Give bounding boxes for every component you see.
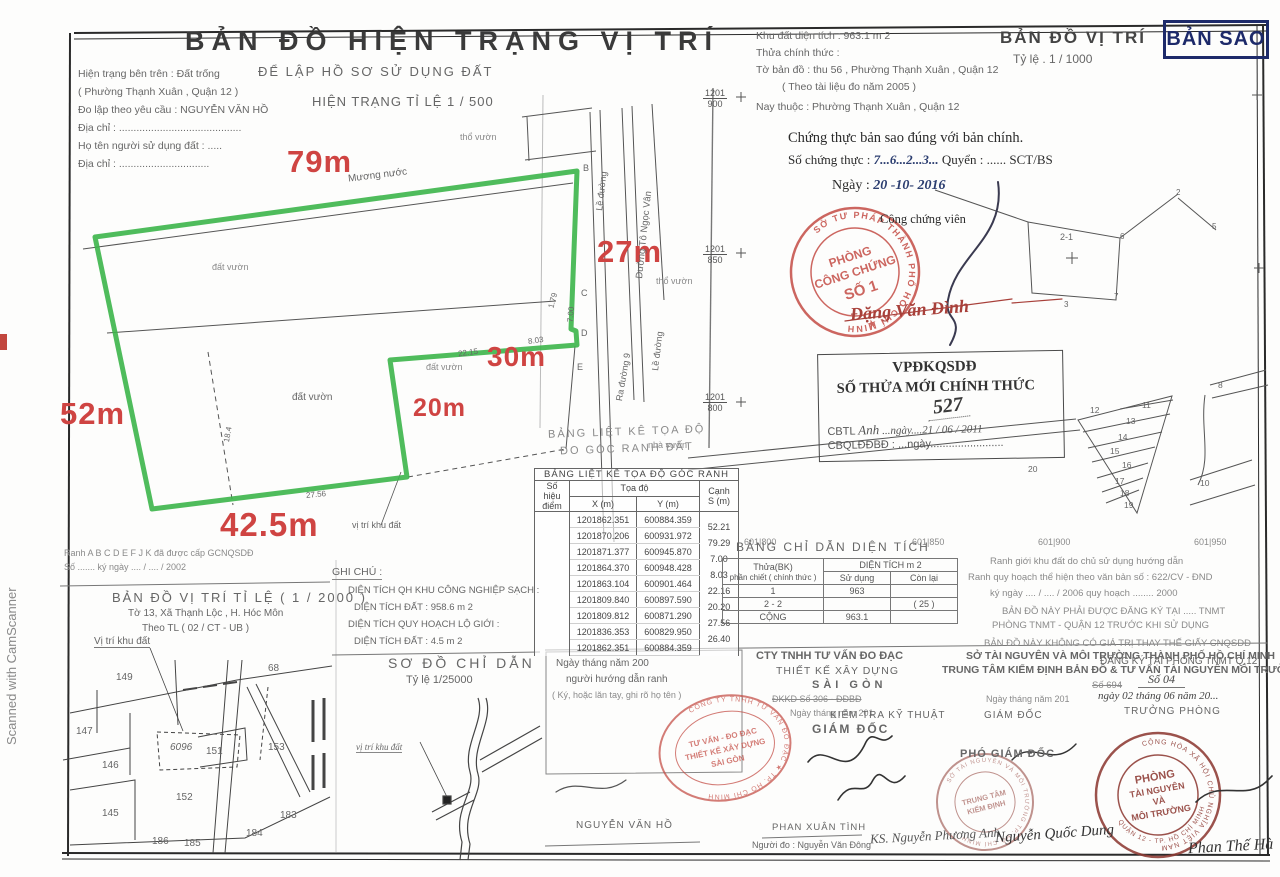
grid-label-601-950: 601|950 [1194,537,1226,547]
coordinate-table: BẢNG LIỆT KÊ TỌA ĐỘ GÓC RANH Số hiệuđiểm… [534,468,739,656]
parcel-185: 185 [184,838,201,849]
certification-line-2: Số chứng thực : 7...6...2...3... Quyển :… [788,152,1053,168]
tnmt-stamp-line3: VÀ [1152,795,1167,807]
area-col-used: Sử dụng [824,572,891,585]
map2000-site-label: Vị trí khu đất [94,636,150,648]
notary-officer-label: Công chứng viên [880,212,966,227]
cert-number-value: 7...6...2...3... [874,152,939,167]
strip-18: 18 [1120,488,1129,498]
document-title: BẢN ĐỒ HIỆN TRẠNG VỊ TRÍ [185,26,719,57]
corner-5: 5 [1212,222,1216,231]
cert-date-value: 20 -10- 2016 [873,178,945,193]
vpdk-box: VPĐKQSDĐ SỐ THỬA MỚI CHÍNH THỨC 527 CBTL… [817,350,1065,462]
site-pointer-label: vị trí khu đất [352,520,401,530]
label-20: 20 [1028,464,1037,474]
sig1-date-line: Ngày tháng năm 200 [556,658,649,669]
document-subtitle: ĐỂ LẬP HỒ SƠ SỬ DỤNG ĐẤT [258,64,493,79]
parcel-183: 183 [280,810,297,821]
grid-frac-bottom: 800 [708,403,723,413]
parcel-184: 184 [246,828,263,839]
strip-19: 19 [1124,500,1133,510]
garden-label-2: đất vườn [292,392,333,403]
note-line-2: Ranh quy hoạch thể hiện theo văn bản số … [968,572,1213,583]
dimension-bottom-42-5m: 42.5m [220,506,319,544]
map-2000-lines [63,648,332,853]
sig3-role-2: GIÁM ĐỐC [984,710,1043,721]
parcel-149: 149 [116,672,133,683]
note-line-5: PHÒNG TNMT - QUẬN 12 TRƯỚC KHI SỬ DỤNG [992,620,1209,631]
strip-14: 14 [1118,432,1127,442]
dimension-left-52m: 52m [60,396,125,432]
vpdk-line1-hand: Anh [858,422,879,437]
map2000-sheet-line: Tờ 13, Xã Thạnh Lộc , H. Hóc Môn [128,608,283,619]
corner-2: 2 [1176,188,1180,197]
corner-3: 3 [1064,300,1068,309]
ward-line: ( Phường Thạnh Xuân , Quận 12 ) [78,86,238,98]
grid-frac-bottom: 850 [708,255,723,265]
table-row: CỘNG963.1 [723,611,958,624]
sig2-role: GIÁM ĐỐC [812,722,889,736]
grid-frac-top: 1201 [703,244,727,255]
grid-frac-1201-800: 1201 800 [703,392,727,413]
map2000-title: BẢN ĐỒ VỊ TRÍ TỈ LỆ ( 1 / 2000 ) [112,590,367,605]
garden-label-1: đất vườn [212,262,248,272]
address-line-2: Địa chỉ : ..............................… [78,158,209,170]
coord-table-title: BẢNG LIỆT KÊ TỌA ĐỘ GÓC RANH [535,469,739,481]
point-label-d: D [581,328,588,338]
vpdk-line-2: CBQLĐĐBĐ : ...ngày......................… [828,437,1004,452]
sig4-reg: Số 04 [1138,672,1185,688]
parcel-68: 68 [268,663,279,674]
copy-stamp-bansao: BẢN SAO [1163,20,1269,59]
grid-frac-top: 1201 [703,392,727,403]
sig4-title: ĐĂNG KÝ TẠI PHÒNG TNMT Q.12 [1100,656,1257,667]
requester-line: Đo lập theo yêu cầu : NGUYỄN VĂN HỒ [78,104,268,116]
scale-500-label: HIỆN TRẠNG TỈ LỆ 1 / 500 [312,94,494,109]
parcel-147: 147 [76,726,93,737]
vpdk-line2-date: ...ngày........................ [898,437,1004,451]
table-row: 1963 [723,585,958,598]
cert-date-label: Ngày : [832,178,870,193]
coord-col-point: Số hiệuđiểm [535,481,570,512]
area-line: Khu đất diện tích : 963.1 m 2 [756,30,890,42]
dimension-mid-30m: 30m [487,341,546,373]
map-sheet-line: Tờ bản đồ : thu 56 , Phường Thạnh Xuân ,… [756,64,998,76]
corner-7: 7 [1114,292,1118,301]
parcel-6096: 6096 [170,742,192,753]
sig3-role-3: PHÓ GIÁM ĐỐC [960,748,1055,760]
grid-frac-1201-900: 1201 900 [703,88,727,109]
ghi-chu-line-1: DIỆN TÍCH QH KHU CÔNG NGHIỆP SẠCH : [348,585,539,596]
vpdk-title: VPĐKQSDĐ [892,358,976,376]
point-label-c: C [581,288,588,298]
map-1000-scale: Tỷ lệ . 1 / 1000 [1013,52,1092,66]
edge-number-2756: 27.56 [306,489,327,500]
so-do-title: SƠ ĐỒ CHỈ DẪN [388,655,535,671]
table-row: 1201862.351600884.35952.21 [535,512,739,528]
area-col-left: Còn lại [891,572,958,585]
scanned-land-survey-document: { "scan": { "watermark": "Scanned with C… [0,0,1280,877]
cert-book-label: Quyển : ...... SCT/BS [942,152,1053,167]
ghi-chu-line-3: DIỆN TÍCH QUY HOẠCH LỘ GIỚI : [348,619,499,630]
area-table-title: BẢNG CHỈ DẪN DIỆN TÍCH [736,540,930,554]
vpdk-new-parcel-number: 527 [926,392,971,421]
vpdk-line1-label: CBTL [827,426,855,438]
note-line-3: ký ngày .... / .... / 2006 quy hoạch ...… [990,588,1177,599]
sig2-name-2: Người đo : Nguyễn Văn Đông [752,840,871,850]
sig1-role: người hướng dẫn ranh [566,674,668,685]
coord-col-x: X (m) [570,496,637,512]
map2000-source-line: Theo TL ( 02 / CT - UB ) [142,623,249,634]
table-row: 2 - 2( 25 ) [723,598,958,611]
sig2-reg: ĐKKD Số 306 - ĐĐBĐ [772,694,862,704]
tho-vuon-label-2: thổ vườn [656,276,692,286]
grid-label-601-900: 601|900 [1038,537,1070,547]
map2000-pre-line-2: Số ....... ký ngày .... / .... / 2002 [64,562,186,572]
strip-16: 16 [1122,460,1131,470]
area-col-area: DIỆN TÍCH m 2 [824,559,958,572]
sig4-role: TRƯỞNG PHÒNG [1124,706,1221,717]
map-1000-title: BẢN ĐỒ VỊ TRÍ [1000,28,1146,48]
land-user-line: Họ tên người sử dụng đất : ..... [78,140,222,152]
dimension-top-79m: 79m [287,144,352,180]
so-do-site-label: vị trí khu đất [356,742,402,753]
ghi-chu-line-4: DIỆN TÍCH ĐẤT : 4.5 m 2 [354,636,462,647]
corner-6: 6 [1120,232,1124,241]
plot-2-1-label: 2-1 [1060,232,1073,242]
sig2-org-1: CTY TNHH TƯ VẤN ĐO ĐẠC [756,650,903,662]
strip-11: 11 [1142,400,1151,410]
tho-vuon-label-1: thổ vườn [460,132,496,142]
source-year-line: ( Theo tài liệu đo năm 2005 ) [782,81,916,93]
dimension-inner-20m: 20m [413,394,466,423]
sig3-date-line: Ngày tháng năm 201 [986,694,1070,704]
coord-col-y: Y (m) [637,496,700,512]
vpdk-line1-date: ...ngày....21 / 06 / 2011 [882,423,983,437]
parcel-153: 153 [268,742,285,753]
sig2-org-2: THIẾT KẾ XÂY DỰNG [776,665,899,677]
point-label-b: B [583,163,589,173]
area-table: Thửa(BK)phần chiết ( chính thức ) DIỆN T… [722,558,958,624]
sig4-date-line: ngày 02 tháng 06 năm 20... [1098,690,1218,702]
status-line: Hiện trạng bên trên : Đất trống [78,68,220,80]
coord-col-edge: CạnhS (m) [700,481,739,512]
sig1-note: ( Ký, hoặc lăn tay, ghi rõ họ tên ) [552,690,681,700]
label-8: 8 [1218,380,1223,390]
sig3-role-1: KIỂM TRA KỸ THUẬT [830,710,946,721]
strip-12: 12 [1090,405,1099,415]
ghi-chu-line-2: DIỆN TÍCH ĐẤT : 958.6 m 2 [354,602,473,613]
plot-outline-green [95,171,577,509]
grid-frac-top: 1201 [703,88,727,99]
certification-date: Ngày : 20 -10- 2016 [832,178,946,194]
dimension-right-27m: 27m [597,234,662,270]
sig2-name-1: PHAN XUÂN TÌNH [772,822,866,833]
ghi-chu-title: GHI CHÚ : [332,566,382,580]
vpdk-subtitle: SỐ THỬA MỚI CHÍNH THỨC [837,377,1035,397]
label-10: 10 [1200,478,1209,488]
so-do-lines [420,698,542,860]
garden-label-3: đất vườn [426,362,462,372]
coord-col-coords: Tọa độ [570,481,700,497]
note-line-6: BẢN ĐỒ NÀY KHÔNG CÓ GIÁ TRỊ THAY THẾ GIẤ… [984,638,1251,649]
note-line-4: BẢN ĐỒ NÀY PHẢI ĐƯỢC ĐĂNG KÝ TẠI ..... T… [1002,606,1225,617]
parcel-152: 152 [176,792,193,803]
parcel-145: 145 [102,808,119,819]
red-margin-mark [0,334,7,350]
grid-frac-bottom: 900 [708,99,723,109]
edge-number-700: 7.00 [566,306,576,322]
map2000-pre-line-1: Ranh A B C D E F J K đã được cấp GCNQSDĐ [64,548,254,558]
strip-15: 15 [1110,446,1119,456]
strip-13: 13 [1126,416,1135,426]
vpdk-line-1: CBTL Anh ...ngày....21 / 06 / 2011 [827,420,982,439]
parcel-146: 146 [102,760,119,771]
strip-17: 17 [1115,476,1124,486]
parcel-151: 151 [206,746,223,757]
parcel-line: Thửa chính thức : [756,47,840,59]
certification-line-1: Chứng thực bản sao đúng với bản chính. [788,130,1023,147]
sig2-org-3: SÀI GÒN [812,679,886,691]
now-belongs-line: Nay thuộc : Phường Thạnh Xuân , Quận 12 [756,101,959,113]
grid-frac-1201-850: 1201 850 [703,244,727,265]
point-label-e: E [577,362,583,372]
cert-number-label: Số chứng thực : [788,152,870,167]
area-col-parcel: Thửa(BK)phần chiết ( chính thức ) [723,559,824,585]
parcel-186: 186 [152,836,169,847]
sig1-name: NGUYỄN VĂN HỒ [576,820,673,831]
note-line-1: Ranh giới khu đất do chủ sử dụng hướng d… [990,556,1183,567]
vpdk-line2-label: CBQLĐĐBĐ : [828,439,895,452]
so-do-scale: Tỷ lệ 1/25000 [406,674,473,686]
address-line-1: Địa chỉ : ..............................… [78,122,241,134]
